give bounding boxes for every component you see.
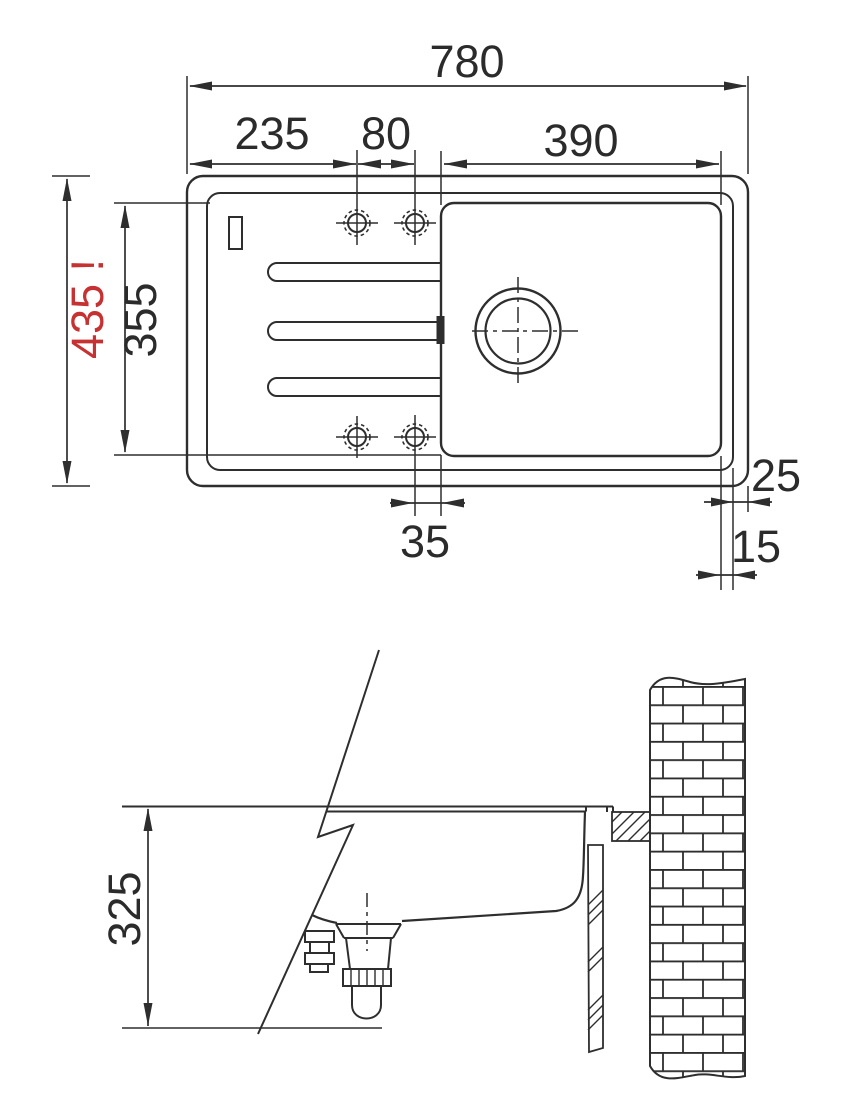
dim-total-width: 780 [429,36,504,87]
dim-drainer-width: 235 [234,108,309,159]
dimension-arrows [63,82,771,580]
bowl-section-wall [402,812,585,922]
sink-outer-edge [187,176,748,486]
section-dimension [122,808,382,1028]
drainboard-groove-3 [268,378,441,396]
dim-section-depth: 325 [99,871,150,946]
trap-pipe [352,986,381,1019]
overflow-slot [229,217,242,249]
dimension-lines [67,86,772,575]
drainboard-groove-1 [268,263,441,281]
sink-drawing-svg: 780 235 80 390 435 ! 355 35 25 15 [0,0,848,1110]
drain-trap-assembly [305,893,401,1019]
break-line [258,650,379,1034]
dim-hole-offset: 35 [400,516,450,567]
bowl-outline [441,203,721,456]
sink-rim-profile [122,807,613,813]
bowl-section-bottom-left [312,915,337,923]
sink-rim-inner-edge [207,193,733,470]
section-view [122,650,745,1078]
dim-total-depth-alert: 435 ! [62,259,113,359]
section-cut-mark [437,316,445,344]
brick-wall [650,678,745,1079]
dim-bowl-width: 390 [543,115,618,166]
trap-side-outlet [305,931,334,972]
dim-inner-depth: 355 [115,282,166,357]
countertop-section [612,812,650,841]
drainboard-groove-2 [268,322,441,340]
faucet-hole-bottom-left [336,416,378,458]
drain-outlet [472,277,578,385]
dim-hole-spacing: 80 [361,108,411,159]
cabinet-panel [588,845,603,1052]
dim-edge-25: 25 [751,450,801,501]
technical-drawing-page: 780 235 80 390 435 ! 355 35 25 15 [0,0,848,1110]
dim-edge-15: 15 [731,521,781,572]
